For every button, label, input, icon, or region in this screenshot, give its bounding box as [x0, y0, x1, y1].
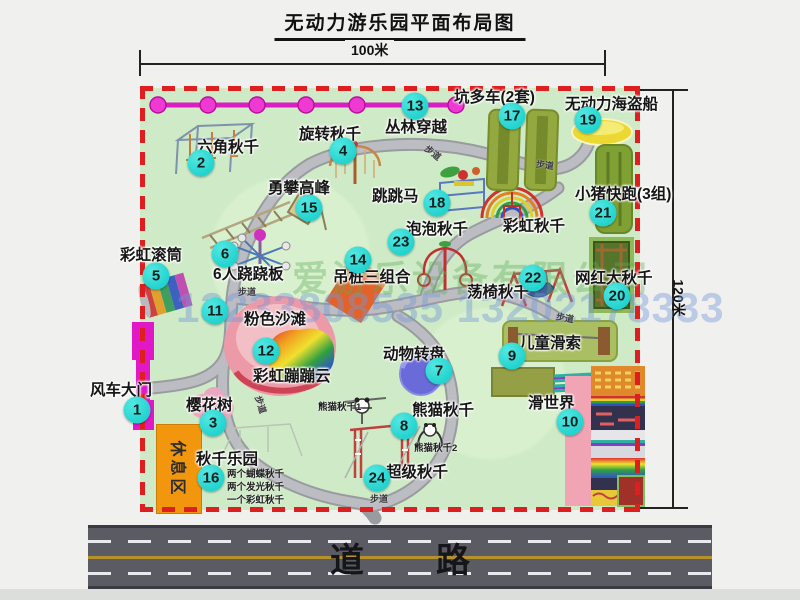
dimension-tick — [640, 507, 688, 509]
note-label-3: 两个发光秋千 — [227, 479, 284, 493]
attraction-marker-2: 2 — [188, 150, 215, 177]
attraction-label-9: 儿童滑索 — [519, 331, 581, 353]
attraction-marker-23: 23 — [388, 229, 415, 256]
attraction-marker-11: 11 — [202, 298, 229, 325]
bottom-margin — [0, 589, 800, 600]
dimension-line-top — [140, 63, 605, 65]
attraction-label-5: 彩虹滚筒 — [120, 243, 182, 265]
attraction-label-24: 超级秋千 — [386, 460, 448, 482]
attraction-label-12: 彩虹蹦蹦云 — [253, 364, 331, 386]
attraction-marker-20: 20 — [604, 283, 631, 310]
attraction-marker-12: 12 — [253, 338, 280, 365]
page-title: 无动力游乐园平面布局图 — [274, 8, 525, 41]
attraction-marker-19: 19 — [575, 107, 602, 134]
attraction-marker-10: 10 — [557, 409, 584, 436]
park-border-left — [140, 86, 145, 512]
park-border-bottom — [140, 507, 640, 512]
dimension-tick — [139, 50, 141, 76]
attraction-label-23: 泡泡秋千 — [406, 217, 468, 239]
park-border-right — [635, 86, 640, 512]
attraction-label-21: 小猪快跑(3组) — [575, 182, 671, 204]
road: 道路 — [88, 525, 712, 589]
attraction-marker-14: 14 — [345, 247, 372, 274]
park-plan-screenshot: 无动力游乐园平面布局图 100米 120米 — [0, 0, 800, 600]
attraction-label-15: 勇攀高峰 — [268, 176, 330, 198]
extra-label-0: 彩虹秋千 — [503, 214, 565, 236]
attraction-marker-3: 3 — [200, 410, 227, 437]
slide-world-icon — [492, 366, 645, 506]
attraction-label-11: 粉色沙滩 — [244, 307, 306, 329]
attraction-marker-17: 17 — [499, 103, 526, 130]
attraction-label-17: 坑多车(2套) — [454, 85, 535, 107]
road-label: 道路 — [330, 533, 542, 582]
dimension-tick — [604, 50, 606, 76]
walkway-label-2: 步道 — [238, 285, 256, 298]
attraction-marker-16: 16 — [198, 465, 225, 492]
rest-area-label: 休息区 — [167, 440, 191, 497]
park-border-top — [140, 86, 640, 91]
attraction-marker-24: 24 — [364, 465, 391, 492]
attraction-marker-7: 7 — [426, 358, 453, 385]
attraction-marker-22: 22 — [520, 265, 547, 292]
rest-area: 休息区 — [156, 424, 202, 514]
attraction-marker-5: 5 — [143, 263, 170, 290]
walkway-label-1: 步道 — [535, 157, 555, 172]
note-label-1: 熊猫秋千2 — [414, 440, 457, 454]
walkway-label-5: 步道 — [370, 492, 388, 505]
attraction-label-14: 吊桩三组合 — [333, 265, 411, 287]
attraction-marker-21: 21 — [590, 200, 617, 227]
note-label-2: 两个蝴蝶秋千 — [227, 466, 284, 480]
attraction-marker-15: 15 — [296, 195, 323, 222]
attraction-marker-1: 1 — [124, 397, 151, 424]
dimension-label-width: 100米 — [345, 40, 394, 60]
attraction-label-8: 熊猫秋千 — [412, 398, 474, 420]
dimension-tick — [640, 89, 688, 91]
attraction-label-18: 跳跳马 — [372, 184, 419, 206]
note-label-0: 熊猫秋千1 — [318, 399, 361, 413]
attraction-marker-8: 8 — [391, 413, 418, 440]
attraction-marker-18: 18 — [424, 190, 451, 217]
attraction-marker-9: 9 — [499, 343, 526, 370]
attraction-marker-6: 6 — [212, 241, 239, 268]
attraction-label-1: 风车大门 — [90, 378, 152, 400]
note-label-4: 一个彩虹秋千 — [227, 492, 284, 506]
attraction-marker-4: 4 — [330, 138, 357, 165]
attraction-marker-13: 13 — [402, 93, 429, 120]
